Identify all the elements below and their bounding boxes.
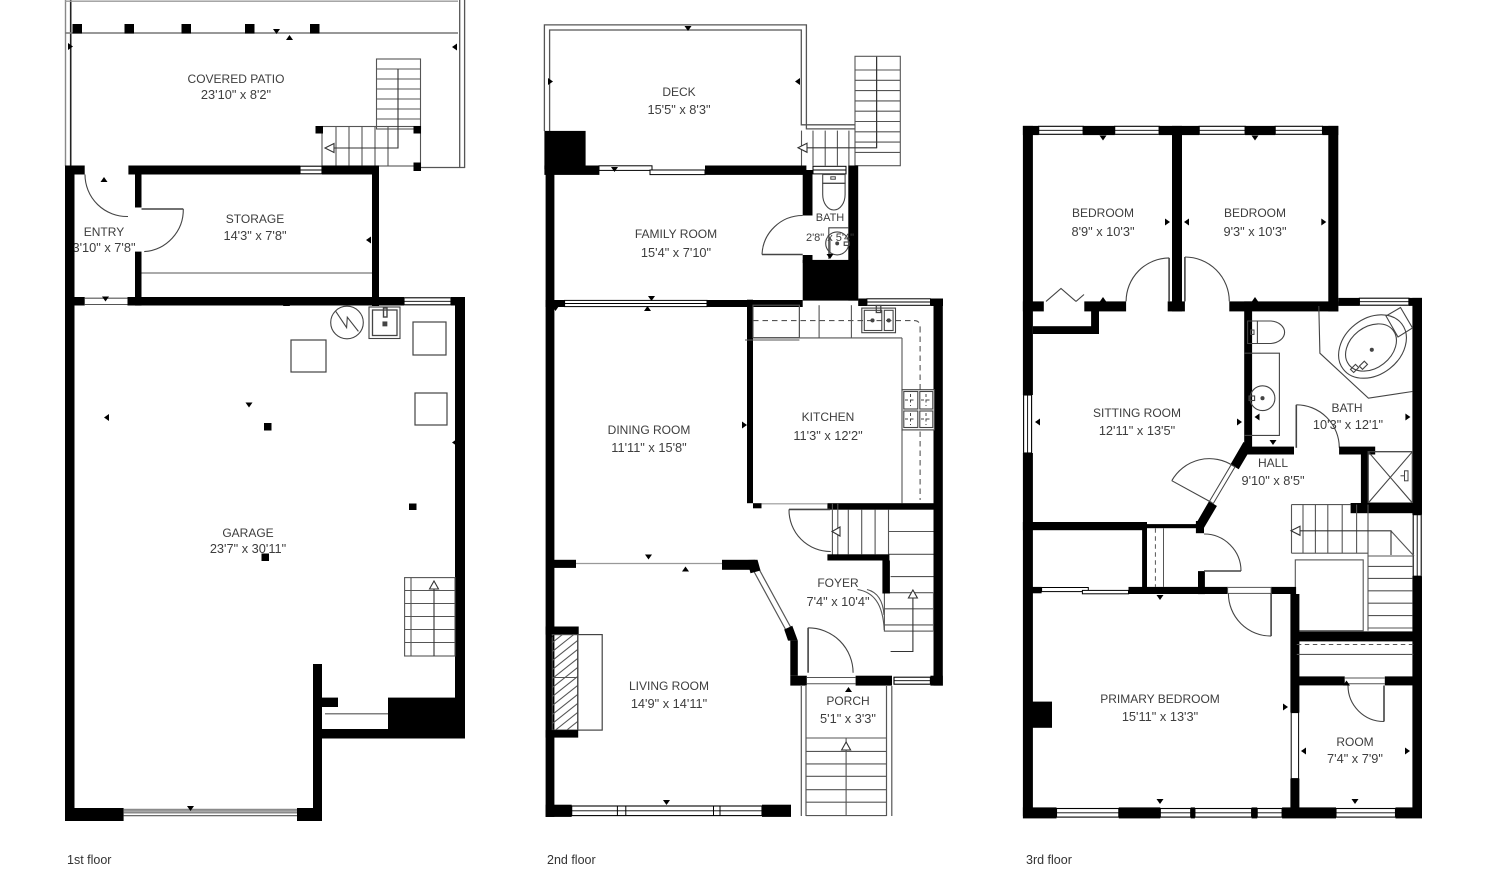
svg-text:15'5" x 8'3": 15'5" x 8'3" xyxy=(647,102,710,117)
svg-text:COVERED PATIO: COVERED PATIO xyxy=(188,72,285,86)
svg-text:14'3" x 7'8": 14'3" x 7'8" xyxy=(223,228,286,243)
svg-text:9'3" x 10'3": 9'3" x 10'3" xyxy=(1223,224,1286,239)
svg-text:14'9" x 14'11": 14'9" x 14'11" xyxy=(631,696,707,711)
svg-text:15'4" x 7'10": 15'4" x 7'10" xyxy=(641,245,711,260)
svg-text:BEDROOM: BEDROOM xyxy=(1072,206,1134,220)
svg-text:11'3" x 12'2": 11'3" x 12'2" xyxy=(793,428,862,443)
svg-text:10'3" x 12'1": 10'3" x 12'1" xyxy=(1313,417,1383,432)
svg-text:DINING ROOM: DINING ROOM xyxy=(608,423,691,437)
svg-text:ROOM: ROOM xyxy=(1336,735,1373,749)
svg-text:7'4" x 10'4": 7'4" x 10'4" xyxy=(806,594,869,609)
svg-text:12'11" x 13'5": 12'11" x 13'5" xyxy=(1099,423,1175,438)
svg-text:LIVING ROOM: LIVING ROOM xyxy=(629,679,709,693)
svg-text:15'11" x 13'3": 15'11" x 13'3" xyxy=(1122,709,1198,724)
svg-text:8'9" x 10'3": 8'9" x 10'3" xyxy=(1071,224,1134,239)
svg-text:3rd floor: 3rd floor xyxy=(1026,853,1072,867)
svg-text:2nd floor: 2nd floor xyxy=(547,853,596,867)
svg-text:3'10" x 7'8": 3'10" x 7'8" xyxy=(72,240,135,255)
svg-text:PORCH: PORCH xyxy=(826,694,869,708)
svg-text:KITCHEN: KITCHEN xyxy=(802,410,855,424)
svg-text:PRIMARY BEDROOM: PRIMARY BEDROOM xyxy=(1100,692,1220,706)
svg-text:9'10" x 8'5": 9'10" x 8'5" xyxy=(1241,473,1304,488)
svg-text:BEDROOM: BEDROOM xyxy=(1224,206,1286,220)
svg-text:HALL: HALL xyxy=(1258,456,1288,470)
svg-text:5'1" x 3'3": 5'1" x 3'3" xyxy=(820,711,876,726)
svg-text:11'11" x 15'8": 11'11" x 15'8" xyxy=(611,440,686,455)
svg-text:ENTRY: ENTRY xyxy=(84,225,124,239)
svg-text:DECK: DECK xyxy=(662,85,695,99)
svg-text:1st floor: 1st floor xyxy=(67,853,111,867)
svg-text:23'7" x 30'11": 23'7" x 30'11" xyxy=(210,541,286,556)
svg-text:BATH: BATH xyxy=(1331,401,1362,415)
svg-text:STORAGE: STORAGE xyxy=(226,212,284,226)
svg-text:FAMILY ROOM: FAMILY ROOM xyxy=(635,227,717,241)
svg-text:7'4" x 7'9": 7'4" x 7'9" xyxy=(1327,751,1383,766)
svg-text:GARAGE: GARAGE xyxy=(222,526,273,540)
svg-text:BATH: BATH xyxy=(816,212,845,224)
svg-text:FOYER: FOYER xyxy=(817,576,859,590)
svg-text:SITTING ROOM: SITTING ROOM xyxy=(1093,406,1181,420)
svg-text:23'10" x 8'2": 23'10" x 8'2" xyxy=(201,87,271,102)
